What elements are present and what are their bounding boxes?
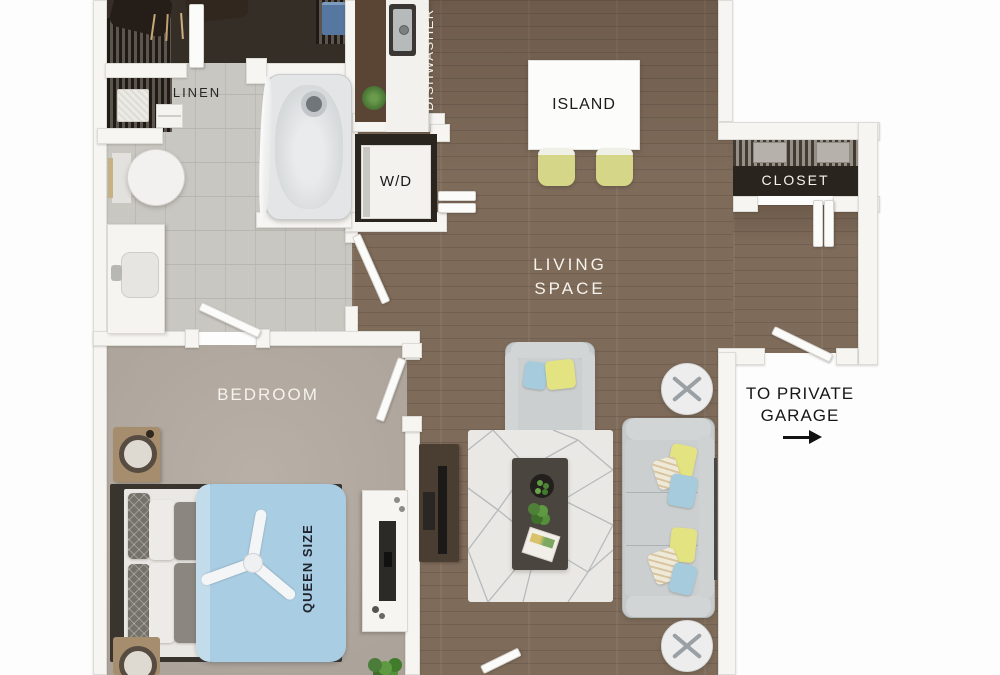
entry-closet-door xyxy=(813,200,823,247)
wall-living-right-lower xyxy=(718,352,736,675)
wall-topright-horizontal xyxy=(718,122,880,140)
table-plant xyxy=(528,503,540,515)
counter-plant xyxy=(362,86,386,110)
wall-jamb xyxy=(402,343,422,358)
garage-entry-wood-floor xyxy=(733,205,858,353)
walkin-closet-door xyxy=(189,4,204,68)
bedroom-plant xyxy=(368,658,382,672)
dresser-decor xyxy=(379,613,385,619)
floor-plan-canvas: CLOSET DISHWASHER W/D ISLAND xyxy=(0,0,1000,675)
wall-below-closet-left xyxy=(733,196,758,212)
storage-bin xyxy=(322,2,346,35)
sofa-armrest xyxy=(626,595,711,617)
toilet-seat-trim xyxy=(108,158,113,198)
sofa-pillow-blue xyxy=(666,473,698,509)
kitchen-island: ISLAND xyxy=(528,60,640,150)
closet-box xyxy=(753,142,787,163)
island-label: ISLAND xyxy=(552,95,616,115)
wall-jamb xyxy=(402,416,422,432)
queen-size-label: QUEEN SIZE xyxy=(300,514,322,624)
island-stool xyxy=(538,148,575,186)
island-stool xyxy=(596,148,633,186)
linen-label: LINEN xyxy=(168,85,226,101)
ceiling-fan-hub xyxy=(243,553,263,573)
bedroom-tv-mount xyxy=(384,552,392,567)
greens xyxy=(537,480,543,486)
armchair-arm xyxy=(582,352,595,436)
magazine-art xyxy=(529,533,555,549)
toilet-bowl xyxy=(127,149,185,206)
armchair-back xyxy=(511,342,589,358)
bed-pillow-white xyxy=(149,500,175,560)
linen-shelf-divider xyxy=(158,115,181,117)
stool-back xyxy=(596,148,633,155)
side-table xyxy=(661,620,713,672)
entry-closet-interior: CLOSET xyxy=(733,166,858,196)
washer-dryer-unit: W/D xyxy=(361,145,431,219)
wall-jamb xyxy=(185,329,199,348)
soundbar xyxy=(423,492,435,530)
vanity-sink xyxy=(121,252,159,298)
living-space-label-line1: LIVING xyxy=(518,254,622,275)
wall-jamb xyxy=(246,58,267,84)
garage-label-line1: TO PRIVATE xyxy=(735,383,865,404)
dresser-decor xyxy=(372,606,379,613)
bathtub-drain-faucet xyxy=(301,91,327,117)
arrow-head xyxy=(809,430,822,444)
arrow-shaft xyxy=(783,436,811,439)
sofa-back xyxy=(697,436,714,598)
laundry-door-panel xyxy=(438,191,476,201)
bed-pillow-gray xyxy=(128,493,150,559)
bed-pillow-white xyxy=(149,563,175,643)
living-space-label-line2: SPACE xyxy=(518,278,622,299)
dresser-knob xyxy=(394,497,400,503)
dresser-knob xyxy=(399,506,405,512)
garage-label-line2: GARAGE xyxy=(735,405,865,426)
wall-closet-bottom xyxy=(105,63,187,78)
side-table xyxy=(661,363,713,415)
bowl-of-greens xyxy=(530,474,554,498)
sofa-frame-edge xyxy=(714,458,717,580)
wall-garage-bottom-right xyxy=(836,348,858,365)
wall-linen-bottom xyxy=(97,128,163,144)
washer-dryer-edge xyxy=(363,147,370,217)
wall-topright-vertical xyxy=(718,0,733,122)
dishwasher-label: DISHWASHER xyxy=(421,4,441,116)
sink-drain xyxy=(399,25,409,35)
washer-dryer-label: W/D xyxy=(380,173,412,192)
nightstand-decor xyxy=(146,430,154,438)
right-arrow-icon xyxy=(783,429,827,445)
armchair-arm xyxy=(505,352,518,436)
linen-basket xyxy=(117,89,149,122)
vanity-faucet xyxy=(111,265,122,281)
wall-bedroom-top-right xyxy=(265,331,420,346)
armchair-pillow-yellow xyxy=(545,359,577,391)
television xyxy=(438,466,447,554)
closet-box xyxy=(816,142,850,163)
bed-pillow-gray xyxy=(128,564,150,648)
wall-right-outer xyxy=(858,122,878,365)
laundry-door-panel xyxy=(438,203,476,213)
stool-back xyxy=(538,148,575,155)
bedroom-label: BEDROOM xyxy=(203,384,333,405)
nightstand-clock xyxy=(119,435,157,473)
entry-closet-door xyxy=(824,200,834,247)
closet-label: CLOSET xyxy=(761,172,829,190)
sofa-armrest xyxy=(626,418,711,440)
